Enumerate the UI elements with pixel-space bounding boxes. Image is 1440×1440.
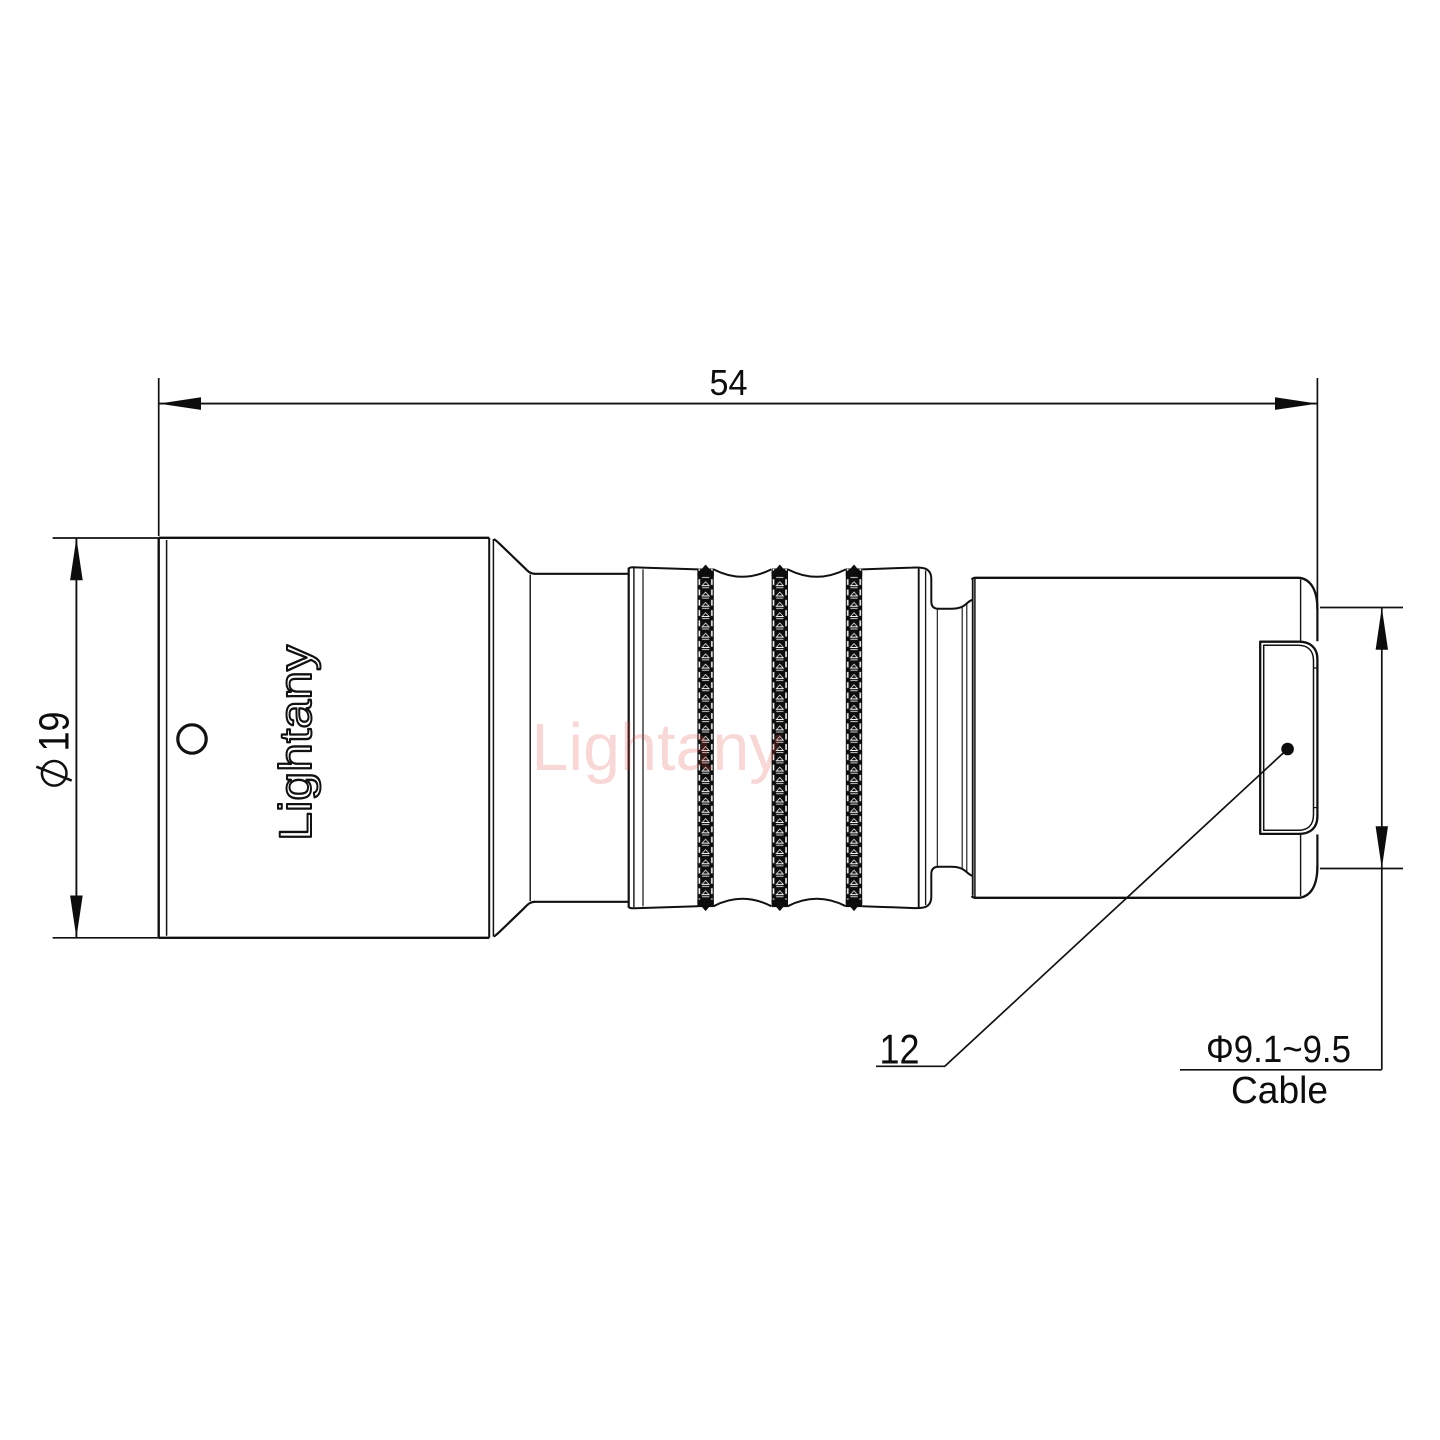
svg-text:54: 54 [710,362,748,403]
svg-text:12: 12 [880,1026,920,1073]
svg-text:Cable: Cable [1231,1070,1328,1112]
svg-text:Φ9.1~9.5: Φ9.1~9.5 [1206,1029,1351,1071]
svg-text:Lightany: Lightany [532,710,783,785]
svg-text:Lightany: Lightany [270,644,321,841]
svg-text:19: 19 [31,712,79,752]
